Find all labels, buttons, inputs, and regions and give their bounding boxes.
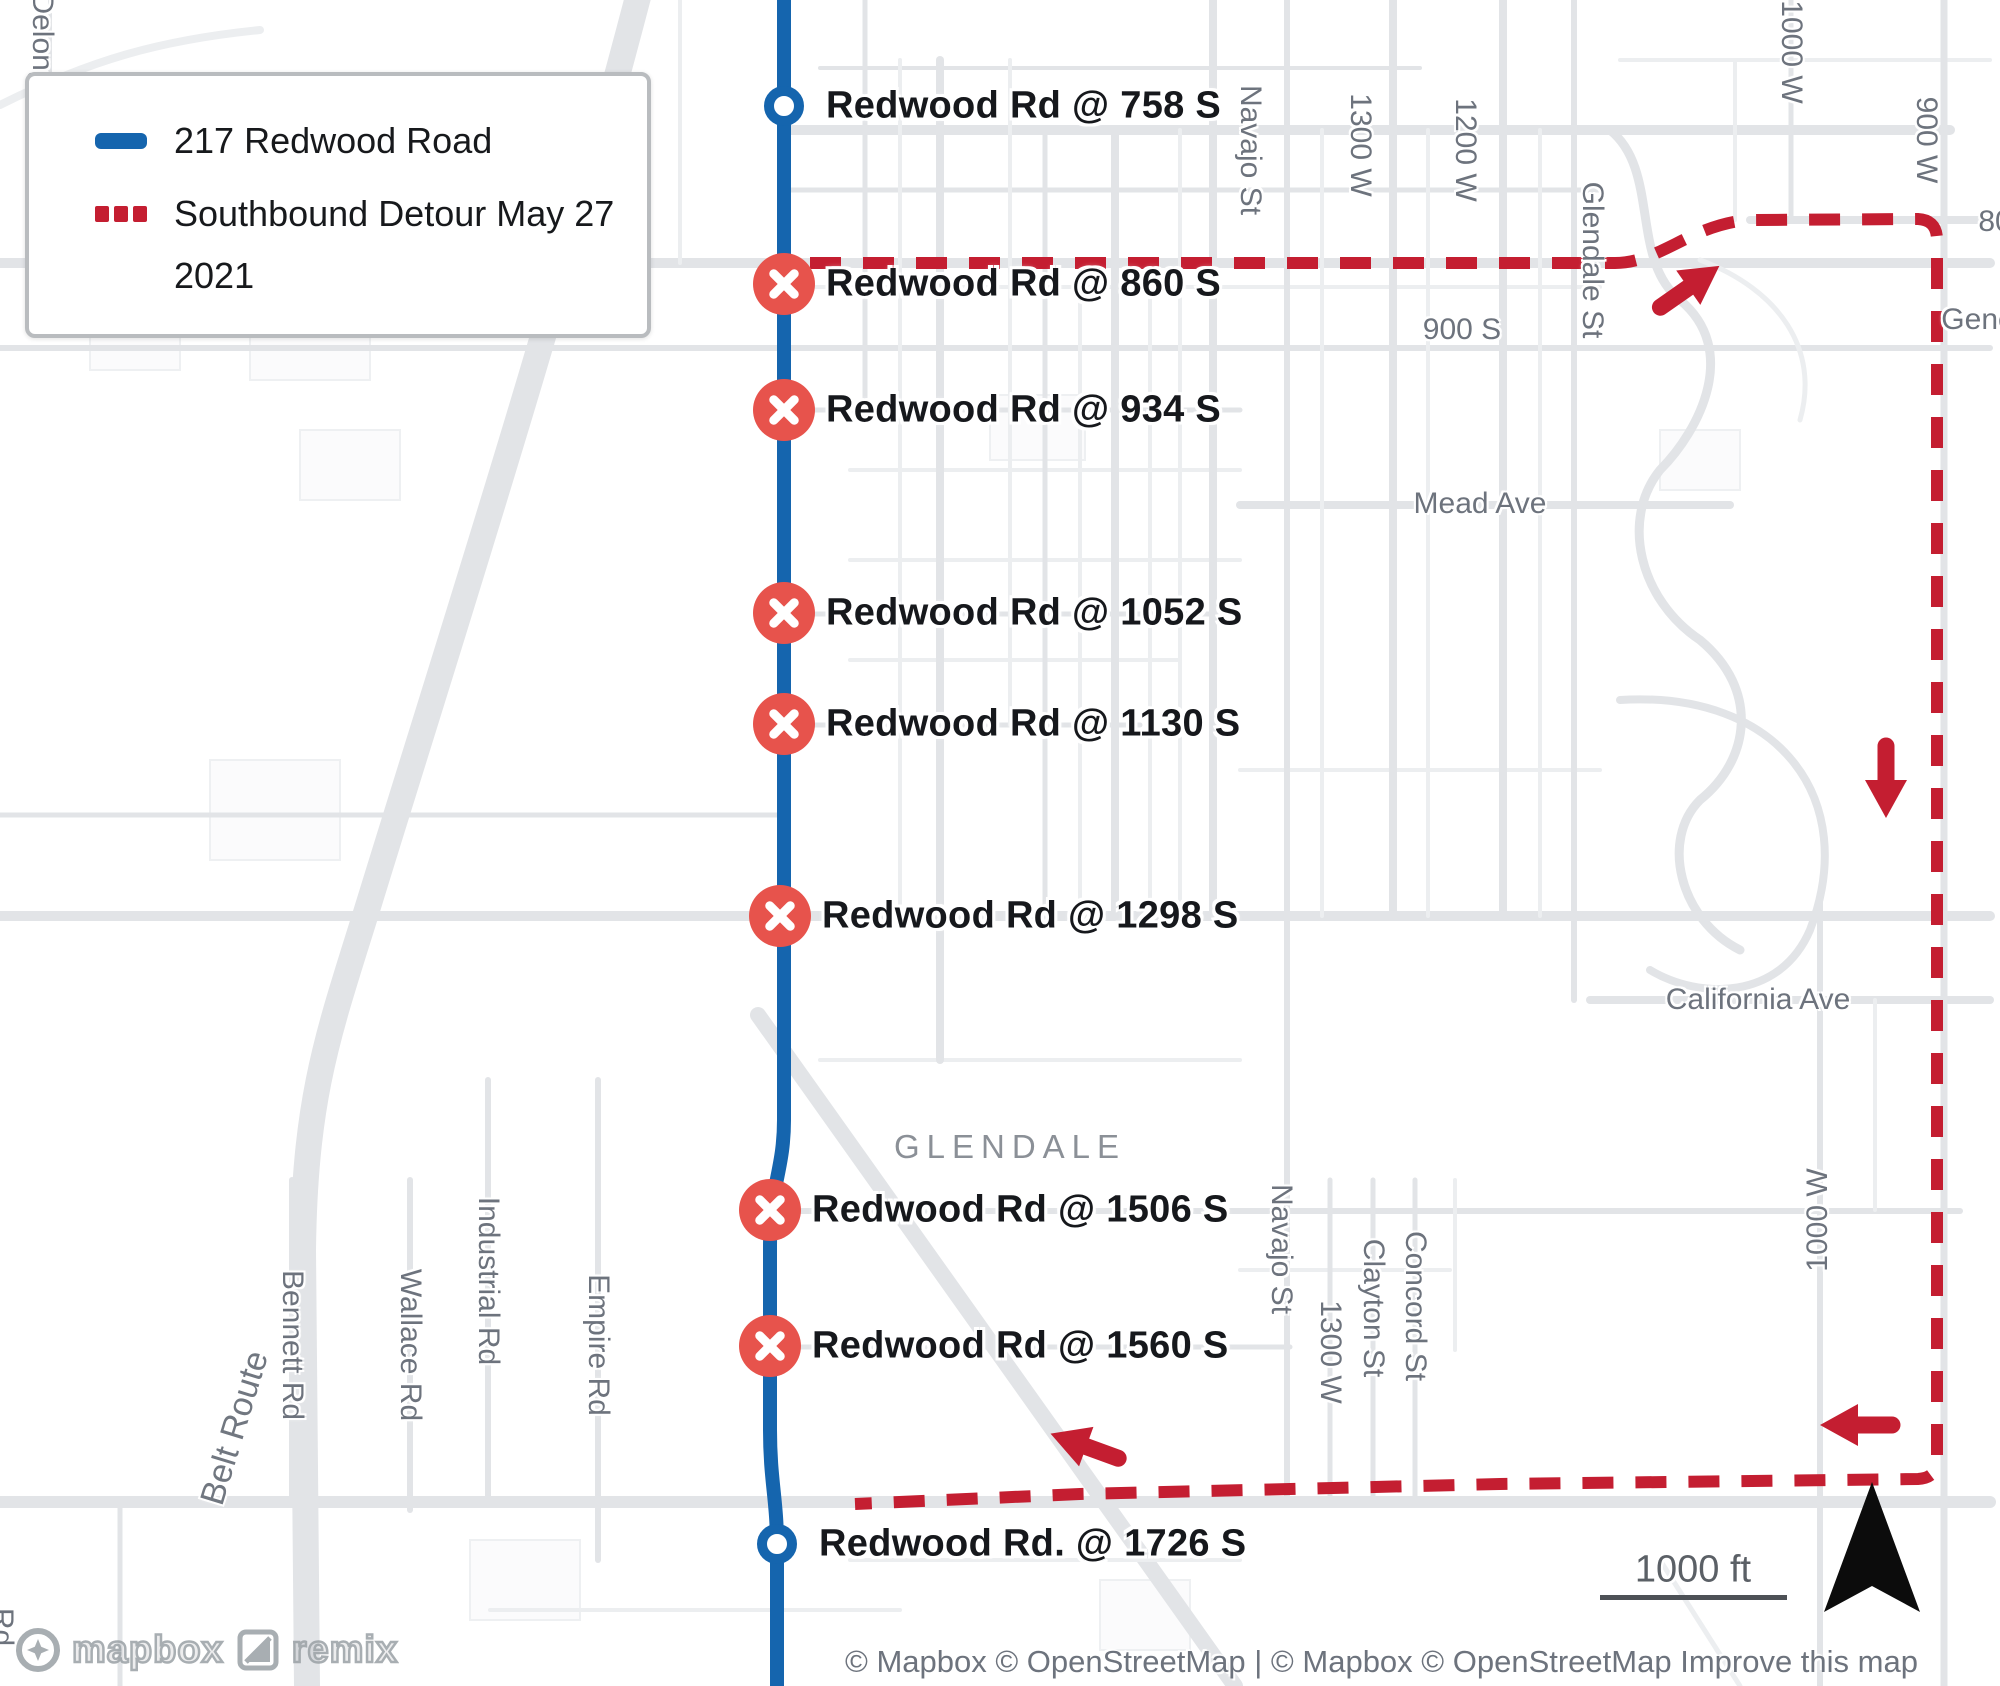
street-label-glendale-st: Glendale St — [1575, 182, 1609, 339]
scale-bar — [1600, 1595, 1787, 1600]
legend-detour-swatch-icon — [95, 206, 147, 222]
stop-marker-open-icon[interactable] — [764, 86, 804, 126]
stop-marker-closed-icon[interactable] — [753, 379, 815, 441]
stop-label: Redwood Rd. @ 1726 S — [819, 1523, 1246, 1566]
stop-label: Redwood Rd @ 1130 S — [826, 703, 1240, 746]
mapbox-logo-icon[interactable] — [14, 1626, 62, 1674]
improve-map-link[interactable]: Improve this map — [1680, 1644, 1918, 1679]
city-label-glendale: GLENDALE — [894, 1128, 1126, 1166]
street-label-900-w: 900 W — [1909, 97, 1943, 184]
street-label-industrial-rd: Industrial Rd — [471, 1197, 505, 1365]
scale-distance-label: 1000 ft — [1635, 1549, 1751, 1592]
street-label-gene-partial: Gene — [1941, 303, 2000, 337]
stop-label: Redwood Rd @ 934 S — [826, 389, 1221, 432]
stop-marker-closed-icon[interactable] — [739, 1179, 801, 1241]
remix-wordmark[interactable]: remix — [292, 1629, 398, 1672]
stop-marker-closed-icon[interactable] — [739, 1315, 801, 1377]
mapbox-wordmark[interactable]: mapbox — [72, 1629, 224, 1672]
stop-label: Redwood Rd @ 1506 S — [812, 1189, 1229, 1232]
street-label-900-s: 900 S — [1423, 313, 1501, 347]
street-label-navajo-st-top: Navajo St — [1233, 85, 1267, 215]
legend-detour-label-line1: Southbound Detour May 27 — [174, 193, 614, 235]
street-label-empire-rd: Empire Rd — [581, 1274, 615, 1416]
stop-marker-open-icon[interactable] — [757, 1524, 797, 1564]
street-label-clayton-st: Clayton St — [1356, 1239, 1390, 1377]
attribution-text: © Mapbox © OpenStreetMap | © Mapbox © Op… — [845, 1644, 1680, 1679]
street-label-california-ave: California Ave — [1666, 983, 1851, 1017]
detour-arrow-left2-icon — [1820, 1404, 1892, 1446]
legend-detour-label-line2: 2021 — [174, 255, 254, 297]
stop-label: Redwood Rd @ 1298 S — [822, 895, 1239, 938]
stop-label: Redwood Rd @ 1560 S — [812, 1325, 1229, 1368]
remix-logo-icon[interactable] — [234, 1626, 282, 1674]
legend-route-label: 217 Redwood Road — [174, 120, 492, 162]
street-label-concord-st: Concord St — [1398, 1231, 1432, 1381]
stop-marker-closed-icon[interactable] — [753, 253, 815, 315]
curved-roads — [1610, 130, 1825, 1686]
stop-label: Redwood Rd @ 1052 S — [826, 592, 1243, 635]
stop-label: Redwood Rd @ 860 S — [826, 263, 1221, 306]
street-label-bennett-rd: Bennett Rd — [275, 1270, 309, 1420]
detour-arrow-down-icon — [1865, 746, 1907, 818]
street-label-1000-w-top: 1000 W — [1774, 0, 1808, 103]
street-label-1300-w-bottom: 1300 W — [1313, 1300, 1347, 1403]
logo-bar: mapbox remix — [14, 1626, 398, 1674]
legend-route-swatch-icon — [95, 133, 147, 149]
stop-marker-closed-icon[interactable] — [753, 582, 815, 644]
street-label-navajo-st-bottom: Navajo St — [1264, 1184, 1298, 1314]
street-label-wallace-rd: Wallace Rd — [393, 1269, 427, 1421]
stop-marker-closed-icon[interactable] — [753, 693, 815, 755]
street-label-1300-w-top: 1300 W — [1343, 93, 1377, 196]
street-label-mead-ave: Mead Ave — [1414, 487, 1547, 521]
map-attribution: © Mapbox © OpenStreetMap | © Mapbox © Op… — [845, 1644, 1918, 1680]
stop-label: Redwood Rd @ 758 S — [826, 85, 1221, 128]
street-label-1200-w: 1200 W — [1448, 98, 1482, 201]
legend-panel: 217 Redwood Road Southbound Detour May 2… — [25, 72, 651, 338]
map-canvas[interactable]: Delong Navajo St 1300 W 1200 W Glendale … — [0, 0, 2000, 1686]
street-label-800-s-partial: 80 — [1978, 205, 2000, 239]
street-label-1000-w-bottom: 1000 W — [1801, 1168, 1835, 1271]
stop-marker-closed-icon[interactable] — [749, 885, 811, 947]
